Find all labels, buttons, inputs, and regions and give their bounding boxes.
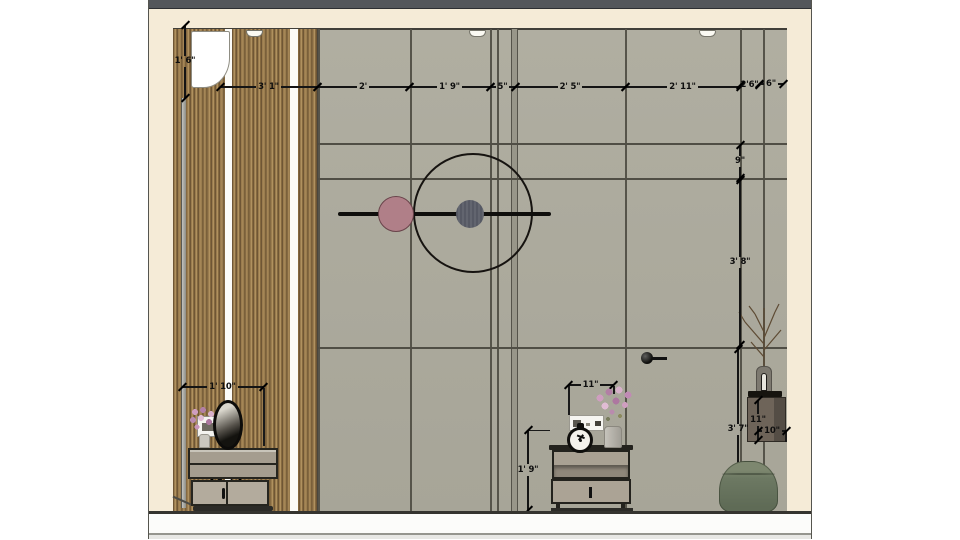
- ceiling-light-icon: [699, 30, 716, 37]
- wall-panel-trim: [511, 29, 518, 512]
- wall-art-gray-disc: [456, 200, 484, 228]
- dimension-label: 3' 8": [730, 257, 751, 269]
- pouf: [719, 461, 778, 513]
- dimension-t3: 1' 9": [409, 81, 490, 93]
- dimension-label: 1' 6": [175, 56, 196, 68]
- dresser-upper-drawers: [188, 448, 278, 479]
- curtain-pole: [181, 98, 186, 508]
- wall-panel-line: [497, 29, 499, 512]
- wall-hook-pin: [652, 357, 667, 360]
- dimension-t6: 2' 11": [625, 81, 740, 93]
- dimension-dr1: 1' 10": [182, 381, 263, 393]
- dimension-label: 5": [496, 83, 510, 92]
- nightstand-lower-drawer: [551, 479, 631, 504]
- shelf-ledge: [748, 391, 782, 397]
- dimension-label: 2' 11": [667, 83, 698, 92]
- wall-panel-line: [318, 347, 787, 349]
- dimension-r1: 9": [734, 145, 746, 178]
- wall-panel-line: [625, 29, 627, 512]
- wall-panel-line: [318, 178, 787, 180]
- wall-panel-line: [490, 29, 492, 512]
- nightstand-upper-drawer: [552, 450, 630, 479]
- branch-vase: [756, 366, 772, 393]
- drawer-handle: [589, 487, 592, 498]
- alarm-clock: [567, 427, 593, 453]
- wall-panel-line: [410, 29, 412, 512]
- floor-line: [149, 511, 811, 514]
- dimension-label: 2' 5": [558, 83, 583, 92]
- extension-line: [263, 388, 265, 446]
- elevation-canvas: 3' 1"2'1' 9"5"2' 5"2' 11"2'6"6"1' 6"9"3'…: [0, 0, 960, 540]
- dimension-label: 3' 1": [256, 83, 281, 92]
- dimension-label: 10": [762, 427, 782, 436]
- wall-panel-line: [318, 29, 320, 512]
- floor-strip: [149, 514, 811, 534]
- flower-bouquet: [592, 386, 636, 424]
- dimension-label: 1' 9": [437, 83, 462, 92]
- flower-vase: [604, 426, 622, 448]
- ceiling-light-icon: [246, 30, 263, 37]
- dimension-l1: 1' 6": [179, 25, 191, 98]
- dimension-t5: 2' 5": [515, 81, 625, 93]
- dimension-label: 6": [764, 80, 778, 89]
- dresser-vase: [199, 434, 210, 448]
- wall-art-pink-disc: [378, 196, 414, 232]
- wall-art-rod: [338, 212, 551, 216]
- wall-panel-line: [318, 143, 787, 145]
- floor-outer-strip: [149, 535, 811, 539]
- dimension-t8: 6": [759, 78, 783, 90]
- dimension-label: 1' 10": [207, 383, 238, 392]
- top-band: [149, 0, 811, 9]
- dresser-lower-cabinet: [191, 480, 269, 506]
- wood-gap-band: [290, 29, 298, 512]
- dimension-label: 9": [735, 156, 745, 168]
- dimension-label: 2': [357, 83, 369, 92]
- dimension-s2: 10": [758, 425, 786, 437]
- dimension-t1: 3' 1": [220, 81, 317, 93]
- cabinet-handle: [222, 488, 225, 499]
- dimension-r2: 3' 8": [734, 180, 746, 345]
- oval-mirror: [213, 400, 243, 450]
- dimension-label: 3' 7": [728, 424, 749, 436]
- dimension-label: 1' 9": [518, 464, 539, 476]
- ceiling-light-icon: [469, 30, 486, 37]
- dimension-t2: 2': [317, 81, 409, 93]
- dimension-n2: 1' 9": [522, 430, 534, 510]
